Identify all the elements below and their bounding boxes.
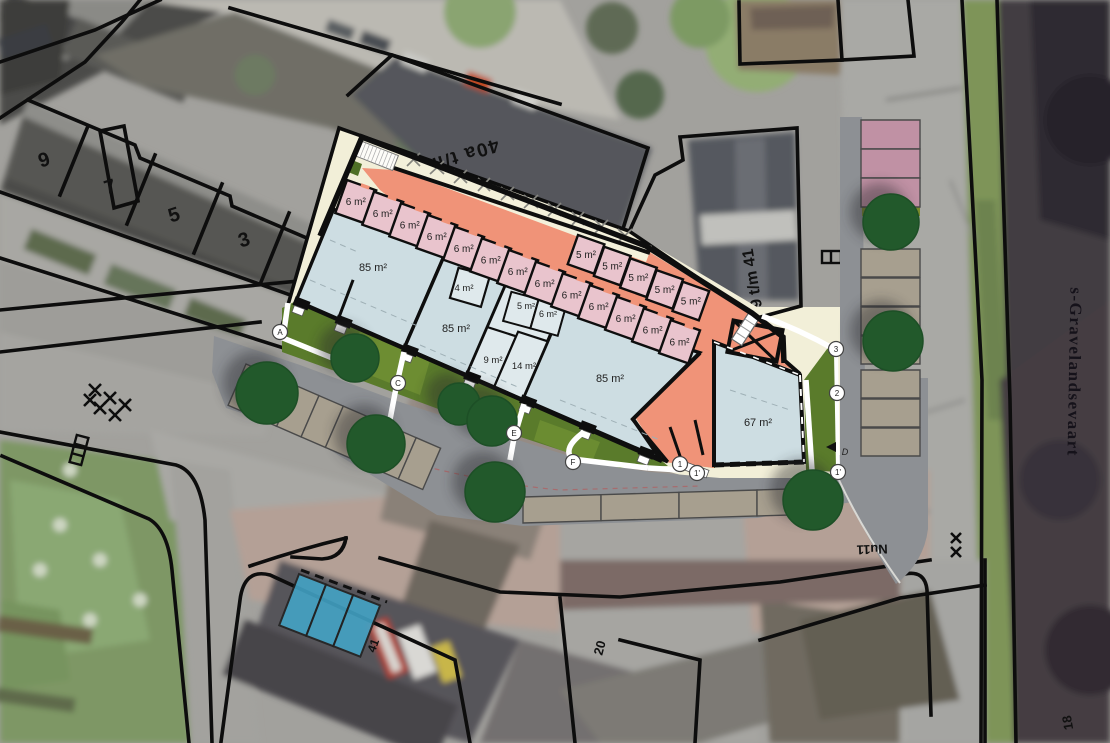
- svg-text:6 m²: 6 m²: [589, 302, 610, 313]
- svg-text:85 m²: 85 m²: [442, 323, 470, 335]
- svg-text:67 m²: 67 m²: [744, 417, 772, 429]
- svg-text:85 m²: 85 m²: [596, 373, 624, 385]
- svg-text:5 m²: 5 m²: [517, 301, 535, 311]
- svg-text:6 m²: 6 m²: [400, 221, 421, 232]
- svg-text:18: 18: [1059, 714, 1076, 731]
- svg-text:5 m²: 5 m²: [576, 250, 597, 261]
- svg-text:5 m²: 5 m²: [681, 297, 702, 308]
- svg-text:s-Gravelandsevaart: s-Gravelandsevaart: [1064, 287, 1086, 457]
- svg-text:6 m²: 6 m²: [616, 314, 637, 325]
- svg-text:1: 1: [678, 460, 683, 469]
- svg-text:3: 3: [834, 345, 839, 354]
- svg-text:1': 1': [694, 469, 700, 478]
- svg-text:14 m²: 14 m²: [512, 361, 536, 372]
- svg-text:5 m²: 5 m²: [628, 273, 649, 284]
- svg-text:4 m²: 4 m²: [455, 283, 474, 294]
- svg-text:6 m²: 6 m²: [346, 197, 367, 208]
- svg-text:Nu11: Nu11: [856, 541, 888, 557]
- svg-text:1': 1': [835, 468, 841, 477]
- svg-text:2: 2: [835, 389, 840, 398]
- svg-text:D: D: [842, 447, 849, 457]
- svg-text:E: E: [511, 429, 516, 438]
- svg-text:6 m²: 6 m²: [481, 256, 502, 267]
- svg-text:6 m²: 6 m²: [373, 209, 394, 220]
- svg-text:6 m²: 6 m²: [539, 309, 557, 319]
- svg-text:C: C: [395, 379, 401, 388]
- svg-text:6 m²: 6 m²: [454, 244, 475, 255]
- svg-text:6 m²: 6 m²: [643, 326, 664, 337]
- svg-text:A: A: [277, 328, 283, 337]
- svg-text:85 m²: 85 m²: [359, 262, 387, 274]
- svg-text:5 m²: 5 m²: [602, 262, 623, 273]
- svg-text:6 m²: 6 m²: [508, 267, 529, 278]
- svg-text:6 m²: 6 m²: [535, 279, 556, 290]
- svg-text:9 m²: 9 m²: [484, 355, 503, 366]
- svg-text:F: F: [571, 458, 576, 467]
- svg-text:5 m²: 5 m²: [655, 285, 676, 296]
- svg-text:6 m²: 6 m²: [427, 232, 448, 243]
- svg-text:6 m²: 6 m²: [670, 337, 691, 348]
- svg-text:6 m²: 6 m²: [562, 291, 583, 302]
